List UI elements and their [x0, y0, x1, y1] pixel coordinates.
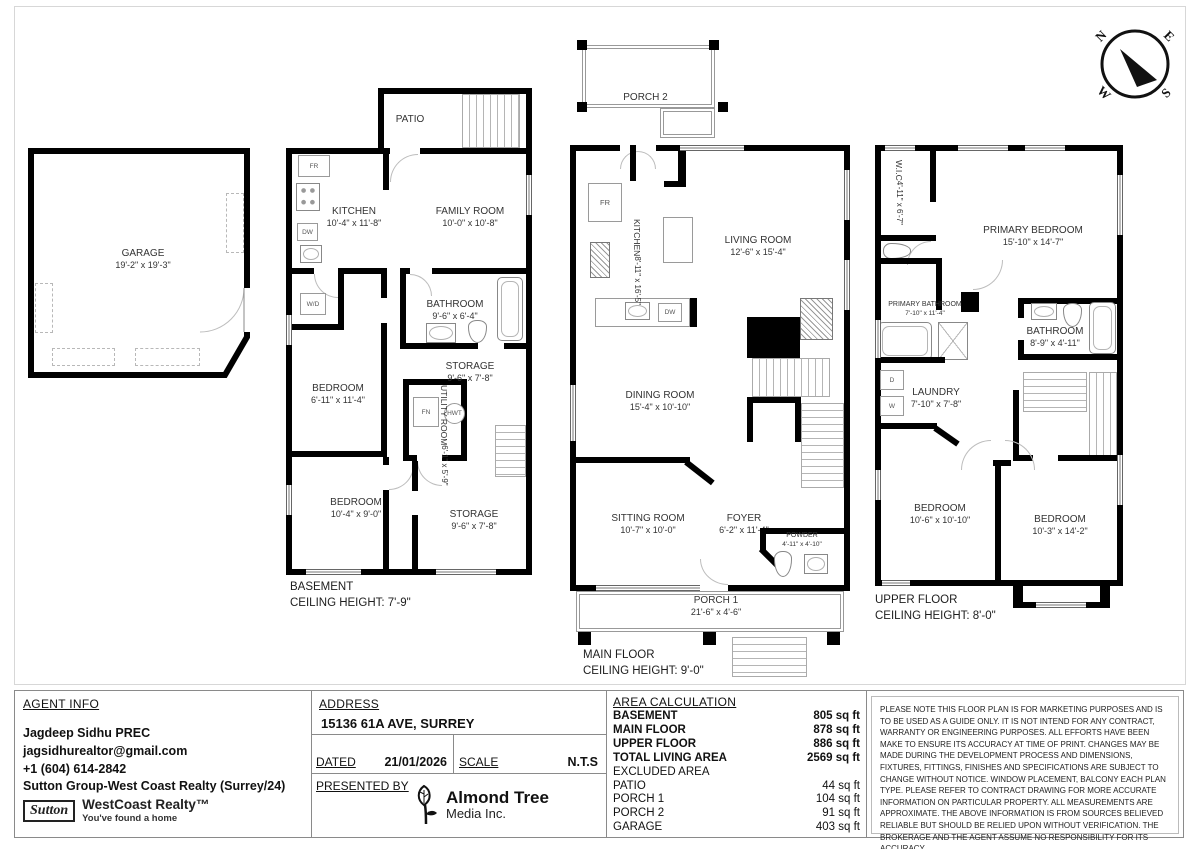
room-label-family-room: FAMILY ROOM10'-0" x 10'-8": [420, 206, 520, 229]
room-dims: 10'-0" x 10'-8": [420, 218, 520, 229]
window: [882, 580, 910, 586]
wall: [630, 145, 636, 181]
door-arc: [700, 559, 728, 585]
area-value: 886 sq ft: [813, 738, 860, 752]
window: [1117, 175, 1123, 235]
room-dims: 21'-6" x 4'-6": [648, 607, 784, 618]
room-name: PORCH 1: [648, 595, 784, 607]
porch-post: [577, 102, 587, 112]
floor-plan-sheet: GARAGE 19'-2" x 19'-3": [0, 0, 1200, 849]
porch-post: [578, 632, 591, 645]
room-label-garage: GARAGE 19'-2" x 19'-3": [68, 248, 218, 271]
fireplace-hatch: [800, 298, 833, 340]
room-name: PRIMARY BEDROOM: [953, 225, 1113, 237]
room-name: FOYER: [706, 513, 782, 525]
ceiling-height: CEILING HEIGHT: 9'-0": [583, 663, 704, 679]
room-label-living: LIVING ROOM12'-6" x 15'-4": [698, 235, 818, 258]
wall: [747, 397, 753, 442]
window: [885, 145, 915, 151]
door-arc: [638, 151, 656, 169]
stairs: [801, 403, 844, 488]
room-dims: 8'-9" x 4'-11": [1007, 338, 1103, 349]
garage-dashed-zone: [35, 283, 53, 333]
wall-angled: [684, 460, 714, 486]
floor-name: BASEMENT: [290, 579, 411, 595]
bathtub: [878, 322, 932, 360]
address-heading: ADDRESS: [319, 697, 379, 711]
wall: [383, 148, 389, 190]
area-calculation-heading: AREA CALCULATION: [613, 695, 736, 709]
room-name: UTILITY ROOM: [439, 385, 449, 445]
room-name: KITCHEN: [314, 206, 394, 218]
dishwasher-label: DW: [665, 309, 676, 316]
room-label-utility: UTILITY ROOM6'-1" x 5'-9": [432, 385, 454, 459]
wall: [338, 268, 344, 330]
room-label-storage-upper: STORAGE9'-6" x 7'-8": [420, 361, 520, 384]
room-dims: 10'-4" x 11'-8": [314, 218, 394, 229]
area-row: TOTAL LIVING AREA2569 sq ft: [613, 752, 860, 766]
room-dims: 4'-11" x 4'-10": [764, 541, 840, 549]
basement-caption: BASEMENTCEILING HEIGHT: 7'-9": [290, 579, 411, 611]
area-value: 805 sq ft: [813, 710, 860, 724]
window: [1036, 602, 1086, 608]
dishwasher-label: DW: [302, 229, 313, 236]
fridge: FR: [298, 155, 330, 177]
media-subname: Media Inc.: [446, 806, 549, 821]
room-name: BATHROOM: [405, 299, 505, 311]
window: [875, 320, 881, 358]
toilet: [774, 551, 792, 577]
fireplace-wall: [747, 317, 800, 358]
toilet: [468, 320, 487, 343]
area-row: MAIN FLOOR878 sq ft: [613, 724, 860, 738]
wall: [664, 181, 686, 187]
room-dims: 8'-11" x 16'-5": [633, 256, 642, 305]
porch-post: [577, 40, 587, 50]
wall: [570, 457, 690, 463]
room-name: STORAGE: [426, 509, 522, 521]
wall: [400, 343, 478, 349]
wall: [747, 397, 801, 403]
media-logo: Almond Tree Media Inc.: [411, 784, 549, 826]
room-dims: 10'-3" x 14'-2": [1003, 526, 1117, 537]
porch-post: [718, 102, 728, 112]
wall: [381, 268, 387, 298]
wall: [875, 258, 936, 264]
wall: [1018, 298, 1024, 318]
wall: [570, 145, 576, 591]
room-dims: 4'-11" x 6'-7": [895, 181, 904, 225]
area-table: BASEMENT805 sq ft MAIN FLOOR878 sq ft UP…: [613, 710, 860, 835]
porch-post: [709, 40, 719, 50]
compass-rose-icon: N E S W: [1093, 22, 1177, 106]
scale-value: N.T.S: [567, 755, 598, 769]
room-name: KITCHEN: [632, 219, 642, 256]
window: [844, 170, 850, 220]
scale-cell: SCALE N.T.S: [454, 735, 606, 774]
room-label-dining: DINING ROOM15'-4" x 10'-10": [602, 390, 718, 413]
room-name: PRIMARY BATHROOM: [879, 301, 971, 310]
room-name: BEDROOM: [294, 383, 382, 395]
window: [1117, 455, 1123, 505]
agent-info-heading: AGENT INFO: [23, 697, 99, 711]
window: [570, 385, 576, 441]
brokerage-logo-name: WestCoast Realty™: [82, 798, 209, 813]
scale-label: SCALE: [459, 755, 498, 769]
washer-dryer-label: W/D: [307, 301, 320, 308]
upper-floor-caption: UPPER FLOORCEILING HEIGHT: 8'-0": [875, 592, 996, 624]
wall: [286, 324, 344, 330]
area-value: 91 sq ft: [822, 807, 860, 821]
area-row: BASEMENT805 sq ft: [613, 710, 860, 724]
area-label: TOTAL LIVING AREA: [613, 752, 727, 766]
garage-dashed-zone: [52, 348, 115, 366]
room-label-laundry: LAUNDRY7'-10" x 7'-8": [897, 387, 975, 410]
room-label-wic: W.I.C4'-11" x 6'-7": [889, 160, 909, 224]
sink: [300, 245, 322, 263]
dated-cell: DATED 21/01/2026: [311, 735, 454, 774]
room-dims: 6'-11" x 11'-4": [294, 395, 382, 406]
wall-angled: [933, 426, 959, 447]
title-block: AGENT INFO Jagdeep Sidhu PREC jagsidhure…: [14, 690, 1184, 838]
sink: [426, 323, 456, 343]
fridge: FR: [588, 183, 622, 222]
room-name: STORAGE: [420, 361, 520, 373]
toilet: [883, 243, 911, 259]
presented-by-cell: PRESENTED BY Almond Tree Media Inc.: [311, 774, 606, 839]
wall: [403, 379, 409, 461]
window: [436, 569, 496, 575]
area-label: EXCLUDED AREA: [613, 766, 710, 780]
room-dims: 10'-4" x 9'-0": [300, 509, 412, 520]
room-name: PORCH 2: [598, 92, 693, 104]
area-row: PORCH 291 sq ft: [613, 807, 860, 821]
garage-plan: GARAGE 19'-2" x 19'-3": [28, 148, 250, 378]
furnace-label: FN: [422, 409, 431, 416]
window: [844, 260, 850, 310]
garage-dashed-zone: [226, 193, 244, 253]
room-label-primary-bathroom: PRIMARY BATHROOM7'-10" x 11'-4": [879, 301, 971, 317]
room-dims: 15'-4" x 10'-10": [602, 402, 718, 413]
room-name: POWDER: [764, 532, 840, 541]
window: [526, 175, 532, 215]
room-dims: 15'-10" x 14'-7": [953, 237, 1113, 248]
area-value: 44 sq ft: [822, 780, 860, 794]
door-arc: [961, 440, 991, 470]
room-name: BATHROOM: [1007, 326, 1103, 338]
room-name: PATIO: [380, 114, 440, 126]
compass: N E S W: [1093, 22, 1177, 106]
upper-floor-plan: W.I.C4'-11" x 6'-7" PRIMARY BATHROOM7'-1…: [873, 140, 1125, 640]
brokerage-tagline: You've found a home: [82, 813, 209, 824]
wall: [526, 94, 532, 154]
agent-name: Jagdeep Sidhu PREC: [23, 725, 285, 743]
wall: [690, 298, 697, 327]
room-dims: 9'-6" x 7'-8": [426, 521, 522, 532]
room-label-patio: PATIO: [380, 114, 440, 126]
agent-details: Jagdeep Sidhu PREC jagsidhurealtor@gmail…: [23, 725, 285, 796]
ceiling-height: CEILING HEIGHT: 7'-9": [290, 595, 411, 611]
garage-door-opening: [241, 288, 250, 332]
room-name: LAUNDRY: [897, 387, 975, 399]
room-label-primary-bedroom: PRIMARY BEDROOM15'-10" x 14'-7": [953, 225, 1113, 248]
door-arc: [973, 260, 1003, 290]
agent-phone: +1 (604) 614-2842: [23, 761, 285, 779]
room-dims: 6'-1" x 5'-9": [440, 445, 449, 485]
patio-stairs: [462, 94, 520, 148]
door-arc: [410, 274, 432, 296]
area-label: PORCH 1: [613, 793, 664, 807]
shower: [938, 322, 968, 360]
wall: [286, 268, 314, 274]
area-row: GARAGE403 sq ft: [613, 821, 860, 835]
room-label-bedroom-left: BEDROOM10'-6" x 10'-10": [883, 503, 997, 526]
area-value: 2569 sq ft: [807, 752, 860, 766]
room-name: BEDROOM: [883, 503, 997, 515]
area-row: PORCH 1104 sq ft: [613, 793, 860, 807]
address-cell: ADDRESS 15136 61A AVE, SURREY: [311, 691, 606, 735]
media-name: Almond Tree: [446, 789, 549, 806]
window: [875, 470, 881, 500]
wall: [383, 457, 389, 465]
area-row: UPPER FLOOR886 sq ft: [613, 738, 860, 752]
room-name: DINING ROOM: [602, 390, 718, 402]
stairs: [752, 358, 830, 397]
door-arc: [390, 154, 418, 182]
door-arc: [389, 465, 414, 490]
room-name: GARAGE: [68, 248, 218, 260]
porch2-step: [660, 108, 715, 138]
room-name: SITTING ROOM: [590, 513, 706, 525]
porch-post: [827, 632, 840, 645]
divider: [866, 691, 867, 837]
wall: [875, 235, 936, 241]
basement-plan: FN HWT FR DW W/D PATIO KITCHEN10'-4" x 1…: [286, 85, 532, 615]
window: [958, 145, 1008, 151]
area-value: 878 sq ft: [813, 724, 860, 738]
area-label: PORCH 2: [613, 807, 664, 821]
divider: [606, 691, 607, 837]
room-name: W.I.C: [894, 160, 904, 181]
washer-label: W: [889, 403, 895, 410]
room-dims: 10'-7" x 10'-0": [590, 525, 706, 536]
room-name: FAMILY ROOM: [420, 206, 520, 218]
room-label-porch1: PORCH 121'-6" x 4'-6": [648, 595, 784, 618]
wall: [286, 451, 387, 457]
room-dims: 9'-6" x 7'-8": [420, 373, 520, 384]
agent-brokerage: Sutton Group-West Coast Realty (Surrey/2…: [23, 778, 285, 796]
room-label-bedroom1: BEDROOM6'-11" x 11'-4": [294, 383, 382, 406]
main-floor-plan: PORCH 2 FR DW KITCHEN8'-11" x 16'-5" LIV…: [568, 35, 852, 683]
room-label-bathroom: BATHROOM9'-6" x 6'-4": [405, 299, 505, 322]
dated-label: DATED: [316, 755, 356, 769]
toilet: [1063, 303, 1082, 327]
wall: [875, 580, 1123, 586]
main-floor-caption: MAIN FLOORCEILING HEIGHT: 9'-0": [583, 647, 704, 679]
window: [286, 485, 292, 515]
area-label: BASEMENT: [613, 710, 678, 724]
floor-name: UPPER FLOOR: [875, 592, 996, 608]
disclaimer-text: PLEASE NOTE THIS FLOOR PLAN IS FOR MARKE…: [871, 696, 1179, 834]
wall: [338, 268, 387, 274]
door-arc: [417, 461, 442, 486]
agent-email: jagsidhurealtor@gmail.com: [23, 743, 285, 761]
dishwasher: DW: [658, 303, 682, 322]
room-label-kitchen: KITCHEN8'-11" x 16'-5": [623, 207, 647, 317]
room-label-bedroom2: BEDROOM10'-4" x 9'-0": [300, 497, 412, 520]
wall: [432, 268, 532, 274]
dated-value: 21/01/2026: [384, 755, 447, 769]
room-name: BEDROOM: [300, 497, 412, 509]
wall: [930, 145, 936, 202]
window: [306, 569, 361, 575]
wall: [412, 515, 418, 569]
brokerage-logo: Sutton WestCoast Realty™ You've found a …: [23, 798, 209, 824]
room-dims: 7'-10" x 11'-4": [879, 310, 971, 318]
sutton-logo-text: Sutton: [30, 803, 68, 818]
wall: [1058, 455, 1123, 461]
area-row: EXCLUDED AREA: [613, 766, 860, 780]
room-label-sitting: SITTING ROOM10'-7" x 10'-0": [590, 513, 706, 536]
room-dims: 10'-6" x 10'-10": [883, 515, 997, 526]
wall: [412, 461, 418, 491]
area-label: MAIN FLOOR: [613, 724, 686, 738]
room-label-bathroom: BATHROOM8'-9" x 4'-11": [1007, 326, 1103, 349]
room-name: BEDROOM: [1003, 514, 1117, 526]
porch-post: [703, 632, 716, 645]
kitchen-island: [663, 217, 693, 263]
dryer-label: D: [890, 377, 895, 384]
stove: [590, 242, 610, 278]
compass-e: E: [1161, 27, 1177, 44]
ceiling-height: CEILING HEIGHT: 8'-0": [875, 608, 996, 624]
room-label-kitchen: KITCHEN10'-4" x 11'-8": [314, 206, 394, 229]
compass-needle-icon: [1120, 49, 1157, 87]
window: [680, 145, 744, 151]
area-label: GARAGE: [613, 821, 662, 835]
sprout-icon: [411, 784, 441, 826]
stairs: [1023, 372, 1087, 412]
door-arc: [1005, 440, 1035, 470]
room-dims: 7'-10" x 7'-8": [897, 399, 975, 410]
fridge-label: FR: [600, 198, 610, 207]
area-row: PATIO44 sq ft: [613, 780, 860, 794]
floor-name: MAIN FLOOR: [583, 647, 704, 663]
room-label-bedroom-right: BEDROOM10'-3" x 14'-2": [1003, 514, 1117, 537]
compass-n: N: [1093, 27, 1110, 45]
wall: [875, 357, 945, 363]
compass-s: S: [1158, 85, 1174, 101]
area-value: 104 sq ft: [816, 793, 860, 807]
room-label-porch2: PORCH 2: [598, 92, 693, 104]
wall: [400, 268, 410, 274]
garage-dashed-zone: [135, 348, 200, 366]
window: [1025, 145, 1065, 151]
room-dims: 12'-6" x 15'-4": [698, 247, 818, 258]
wall: [875, 423, 937, 429]
area-label: UPPER FLOOR: [613, 738, 696, 752]
fridge-label: FR: [310, 163, 319, 170]
wall: [875, 145, 881, 586]
area-label: PATIO: [613, 780, 646, 794]
wall: [1018, 354, 1117, 360]
sink: [1031, 303, 1057, 320]
room-name: LIVING ROOM: [698, 235, 818, 247]
presented-by-label: PRESENTED BY: [316, 779, 409, 793]
room-label-storage-lower: STORAGE9'-6" x 7'-8": [426, 509, 522, 532]
stairs: [1089, 372, 1117, 458]
wall: [504, 343, 532, 349]
stairs: [495, 425, 526, 477]
room-dims: 9'-6" x 6'-4": [405, 311, 505, 322]
sutton-logo-icon: Sutton: [23, 800, 75, 822]
window: [286, 315, 292, 345]
room-label-powder: POWDER4'-11" x 4'-10": [764, 532, 840, 548]
room-dims: 19'-2" x 19'-3": [68, 260, 218, 271]
entry-steps: [732, 637, 807, 677]
area-value: 403 sq ft: [816, 821, 860, 835]
sink: [804, 554, 828, 574]
washer-dryer: W/D: [300, 293, 326, 315]
address-value: 15136 61A AVE, SURREY: [321, 716, 474, 731]
